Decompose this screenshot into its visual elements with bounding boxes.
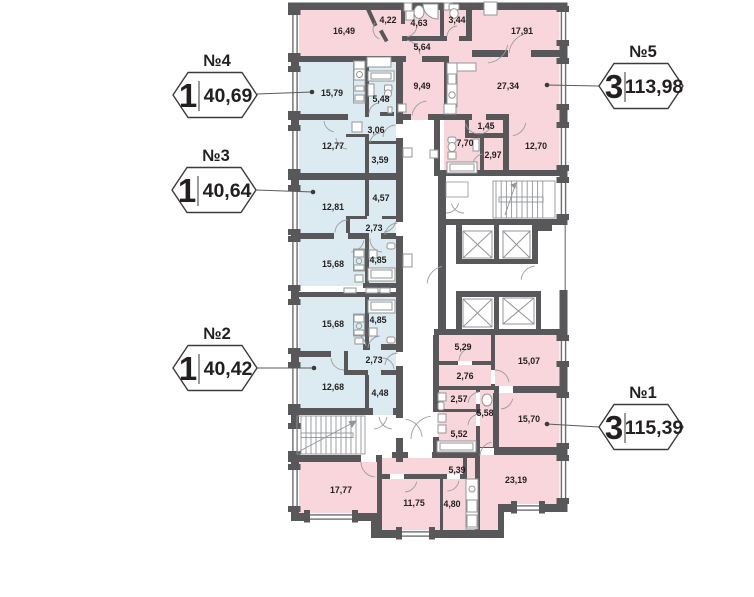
svg-text:40,64: 40,64: [203, 180, 252, 202]
svg-text:№5: №5: [629, 43, 657, 61]
svg-text:2,97: 2,97: [484, 150, 501, 160]
svg-text:115,39: 115,39: [625, 417, 684, 439]
svg-text:3: 3: [605, 409, 623, 446]
svg-text:4,63: 4,63: [410, 18, 427, 28]
svg-text:4,80: 4,80: [443, 499, 460, 509]
svg-text:1: 1: [179, 77, 197, 114]
svg-text:5,64: 5,64: [413, 42, 430, 52]
svg-text:11,75: 11,75: [403, 498, 425, 508]
svg-text:2,76: 2,76: [456, 371, 473, 381]
svg-text:12,77: 12,77: [322, 141, 344, 151]
svg-text:15,07: 15,07: [518, 356, 540, 366]
svg-text:12,70: 12,70: [525, 141, 547, 151]
svg-text:12,81: 12,81: [322, 202, 344, 212]
svg-text:4,57: 4,57: [372, 193, 389, 203]
svg-text:4,22: 4,22: [379, 15, 396, 25]
svg-text:5,48: 5,48: [372, 94, 389, 104]
svg-text:№2: №2: [203, 325, 231, 343]
svg-text:17,91: 17,91: [511, 26, 533, 36]
svg-text:2,57: 2,57: [450, 394, 467, 404]
svg-text:23,19: 23,19: [505, 475, 527, 485]
svg-text:4,85: 4,85: [369, 255, 386, 265]
svg-text:7,70: 7,70: [456, 138, 473, 148]
svg-text:1: 1: [179, 350, 197, 387]
svg-text:№3: №3: [202, 147, 230, 165]
svg-text:3,59: 3,59: [371, 155, 388, 165]
svg-text:40,69: 40,69: [204, 85, 253, 107]
svg-text:12,68: 12,68: [322, 382, 344, 392]
svg-text:3: 3: [605, 68, 623, 105]
svg-text:3,06: 3,06: [367, 125, 384, 135]
svg-text:5,58: 5,58: [476, 408, 493, 418]
svg-text:2,73: 2,73: [365, 355, 382, 365]
svg-text:№1: №1: [629, 384, 657, 402]
svg-text:5,29: 5,29: [454, 342, 471, 352]
svg-text:16,49: 16,49: [333, 26, 355, 36]
svg-text:15,79: 15,79: [321, 88, 343, 98]
svg-text:9,49: 9,49: [413, 81, 430, 91]
svg-text:5,39: 5,39: [448, 465, 465, 475]
svg-text:4,48: 4,48: [371, 388, 388, 398]
svg-text:27,34: 27,34: [497, 81, 519, 91]
svg-text:113,98: 113,98: [625, 76, 684, 98]
svg-text:1: 1: [178, 172, 196, 209]
svg-text:4,85: 4,85: [369, 315, 386, 325]
svg-text:15,68: 15,68: [322, 319, 344, 329]
svg-text:2,73: 2,73: [365, 223, 382, 233]
svg-text:№4: №4: [203, 52, 231, 70]
svg-text:17,77: 17,77: [330, 485, 352, 495]
svg-text:15,70: 15,70: [518, 414, 540, 424]
svg-text:40,42: 40,42: [204, 358, 253, 380]
svg-text:5,52: 5,52: [450, 429, 467, 439]
svg-text:1,45: 1,45: [477, 121, 494, 131]
svg-text:15,68: 15,68: [322, 259, 344, 269]
svg-text:3,44: 3,44: [448, 15, 465, 25]
